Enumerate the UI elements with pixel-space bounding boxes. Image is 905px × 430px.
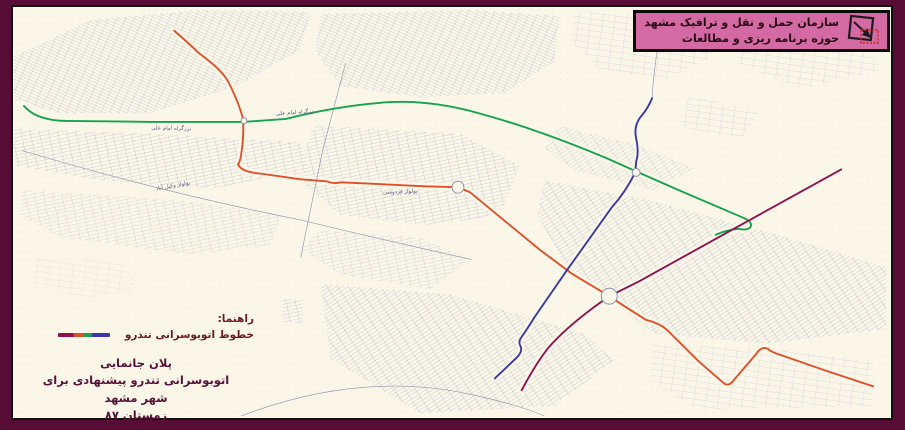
org-line1: سازمان حمل و نقل و ترافیک مشهد — [644, 15, 839, 31]
caption-line1: پلان جانمایی — [38, 355, 234, 372]
junction-circle — [452, 181, 464, 193]
street-label: بولوار فردوسی — [383, 189, 418, 196]
junction-circle — [601, 288, 617, 304]
brt-lines-color-sample — [58, 333, 110, 337]
junction-circle — [241, 118, 247, 124]
org-title-box: سازمان حمل و نقل و ترافیک مشهد حوزه برنا… — [633, 10, 890, 52]
junction-circle — [632, 168, 640, 176]
org-line2: حوزه برنامه ریزی و مطالعات — [644, 31, 839, 47]
caption-line2: اتوبوسرانی تندرو پیشنهادی برای شهر مشهد — [38, 372, 234, 407]
caption-line3: زمستان ۸۷ — [38, 407, 234, 424]
street-label: بزرگراه امام علی — [151, 124, 191, 132]
mashhad-brt-map-image: بزرگراه امام علیبزرگراه امام علیبولوار و… — [0, 0, 905, 430]
org-title-text: سازمان حمل و نقل و ترافیک مشهد حوزه برنا… — [644, 15, 839, 47]
map-caption: پلان جانمایی اتوبوسرانی تندرو پیشنهادی ب… — [38, 355, 234, 424]
org-logo-icon — [843, 14, 883, 48]
legend-item-label: خطوط اتوبوسرانی تندرو — [125, 329, 254, 341]
legend-title: راهنما: — [58, 313, 254, 325]
legend: راهنما: خطوط اتوبوسرانی تندرو — [58, 313, 254, 341]
